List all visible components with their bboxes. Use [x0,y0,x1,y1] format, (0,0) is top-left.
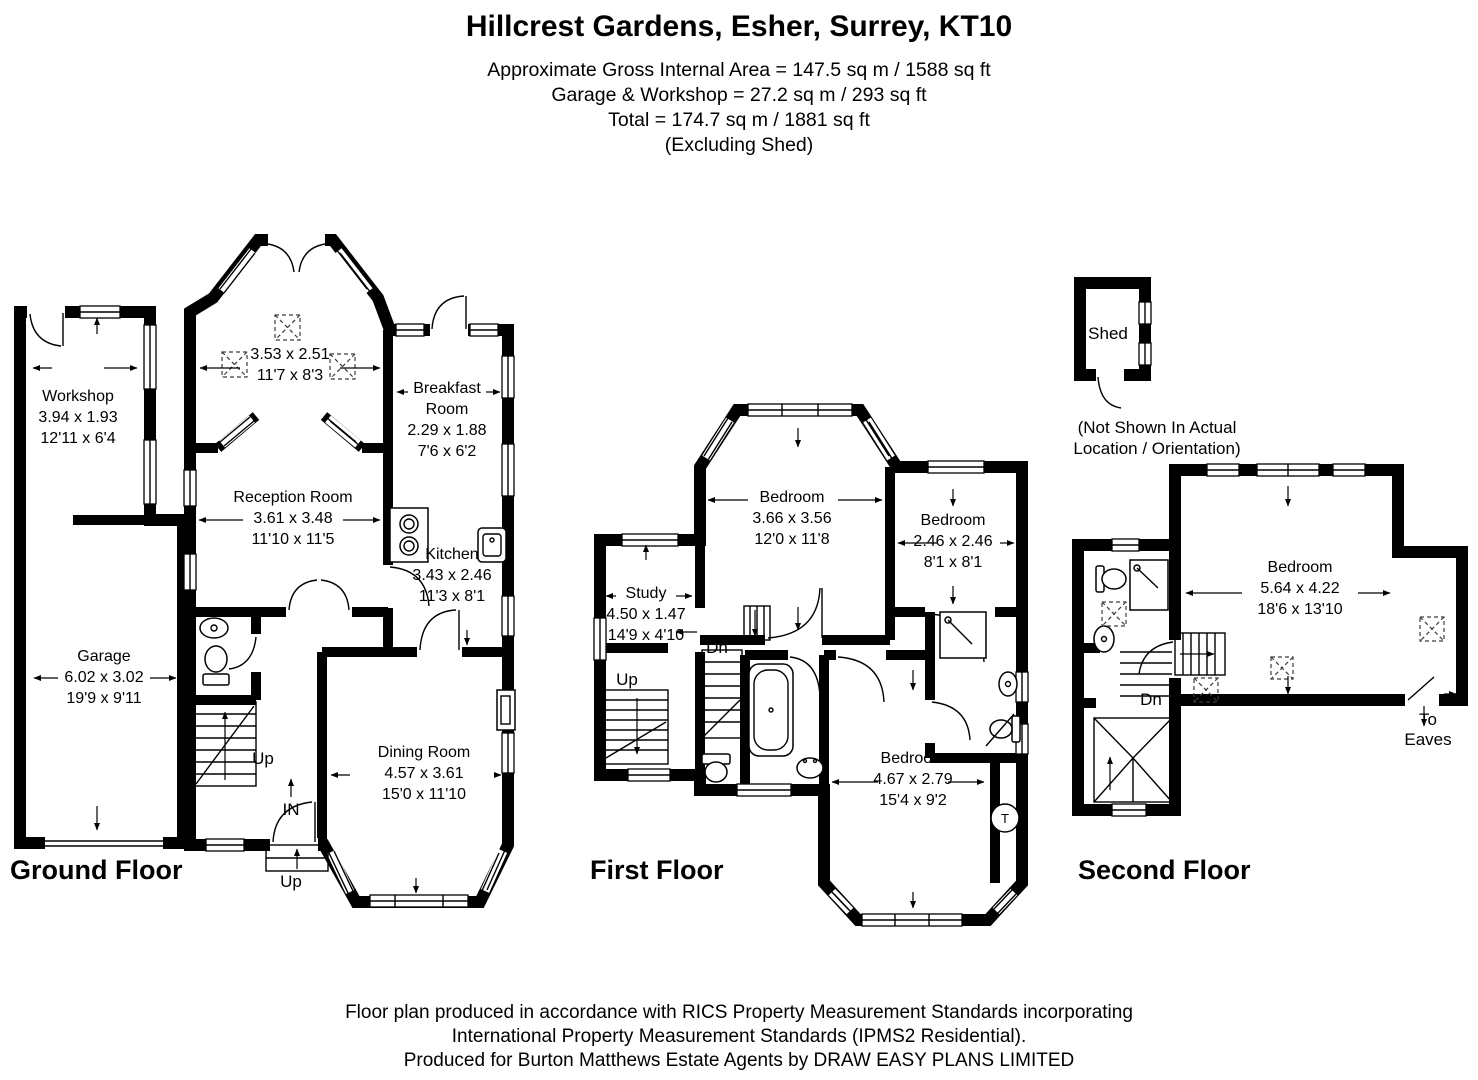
door-arc-icons [768,588,984,740]
stairs-up-label: Up [616,670,638,690]
footer-line-1: Floor plan produced in accordance with R… [0,1001,1478,1025]
first-floor-title: First Floor [590,855,724,886]
toilet-icon [702,754,730,782]
room-label-bedroom-middle: Bedroom 2.46 x 2.46 8'1 x 8'1 [913,510,992,573]
bath-icon [749,664,793,756]
first-floor-plan [594,404,1028,926]
floorplan-drawing [0,0,1478,1080]
water-tank-label: T [1001,811,1009,826]
porch-up-label: Up [280,872,302,892]
room-label-bedroom-second: Bedroom 5.64 x 4.22 18'6 x 13'10 [1257,557,1342,620]
staircase [194,702,256,786]
floorplan-page: Hillcrest Gardens, Esher, Surrey, KT10 A… [0,0,1478,1080]
gross-internal-area: Approximate Gross Internal Area = 147.5 … [0,59,1478,82]
excluding-shed-note: (Excluding Shed) [0,134,1478,157]
to-eaves-label: To Eaves [1397,710,1459,750]
ground-floor-title: Ground Floor [10,855,182,886]
room-label-kitchen: Kitchen 3.43 x 2.46 11'3 x 8'1 [412,544,491,607]
second-floor-title: Second Floor [1078,855,1251,886]
room-label-workshop: Workshop 3.94 x 1.93 12'11 x 6'4 [38,386,117,449]
shower-icon [940,612,986,658]
stairs-dn-label: Dn [706,638,728,658]
footer-line-3: Produced for Burton Matthews Estate Agen… [0,1049,1478,1073]
room-label-reception-room: Reception Room 3.61 x 3.48 11'10 x 11'5 [233,487,352,550]
room-label-bedroom-back: Bedroom 4.67 x 2.79 15'4 x 9'2 [873,748,952,811]
entrance-in-label: IN [283,800,300,820]
toilet-icon [1096,566,1126,592]
footer-line-2: International Property Measurement Stand… [0,1025,1478,1049]
sink-icon [200,618,228,638]
shower-icon [1130,560,1168,610]
room-label-front-room: 3.53 x 2.51 11'7 x 8'3 [250,344,329,386]
shed-label: Shed [1088,324,1128,344]
room-label-breakfast-room: Breakfast Room 2.29 x 1.88 7'6 x 6'2 [401,378,493,462]
sink-icon [1094,626,1114,652]
room-label-study: Study 4.50 x 1.47 14'9 x 4'10 [606,583,685,646]
fireplace-icon [497,690,515,730]
window-icons [594,404,1028,926]
stairs-dn-label: Dn [1140,690,1162,710]
sink-icon [999,672,1017,696]
shed-note: (Not Shown In Actual Location / Orientat… [1073,417,1240,459]
total-area: Total = 174.7 sq m / 1881 sq ft [0,109,1478,132]
room-label-dining-room: Dining Room 4.57 x 3.61 15'0 x 11'10 [378,742,470,805]
toilet-icon [986,714,1020,746]
sink-icon [797,758,823,778]
toilet-icon [203,646,229,685]
room-label-bedroom-front: Bedroom 3.66 x 3.56 12'0 x 11'8 [752,487,831,550]
room-label-garage: Garage 6.02 x 3.02 19'9 x 9'11 [64,646,143,709]
staircase [1094,633,1225,802]
page-title: Hillcrest Gardens, Esher, Surrey, KT10 [0,10,1478,44]
stairs-up-label: Up [252,749,274,769]
garage-workshop-area: Garage & Workshop = 27.2 sq m / 293 sq f… [0,84,1478,107]
